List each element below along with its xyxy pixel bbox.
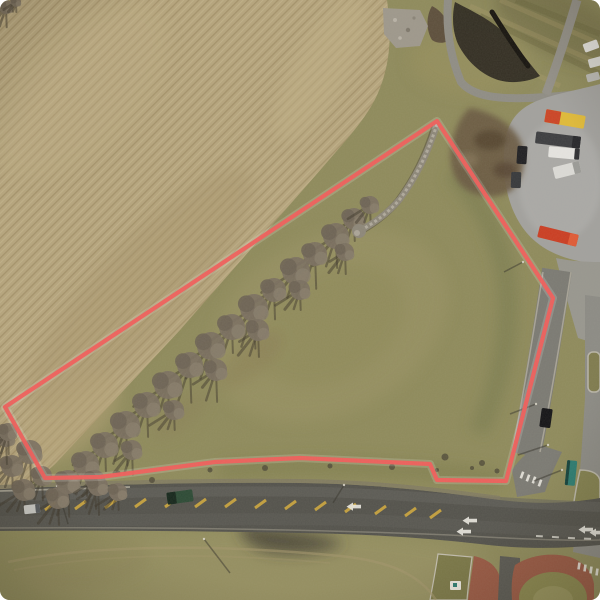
aerial-photo-frame <box>0 0 600 600</box>
vignette <box>0 0 600 600</box>
aerial-photo <box>0 0 600 600</box>
